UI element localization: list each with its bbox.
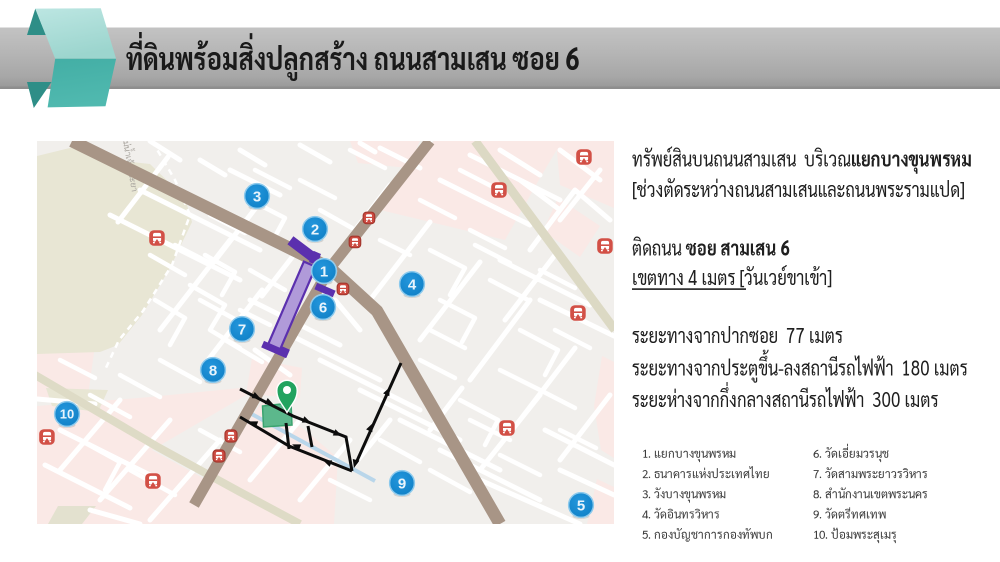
svg-text:5: 5 — [577, 497, 585, 514]
svg-text:2: 2 — [311, 221, 319, 238]
svg-text:6: 6 — [319, 299, 327, 316]
svg-text:7: 7 — [238, 321, 246, 338]
svg-text:4: 4 — [408, 276, 417, 293]
svg-text:9: 9 — [398, 475, 406, 492]
svg-text:1: 1 — [320, 263, 328, 280]
svg-text:3: 3 — [253, 188, 261, 205]
svg-text:10: 10 — [60, 407, 74, 422]
svg-text:8: 8 — [209, 362, 217, 379]
